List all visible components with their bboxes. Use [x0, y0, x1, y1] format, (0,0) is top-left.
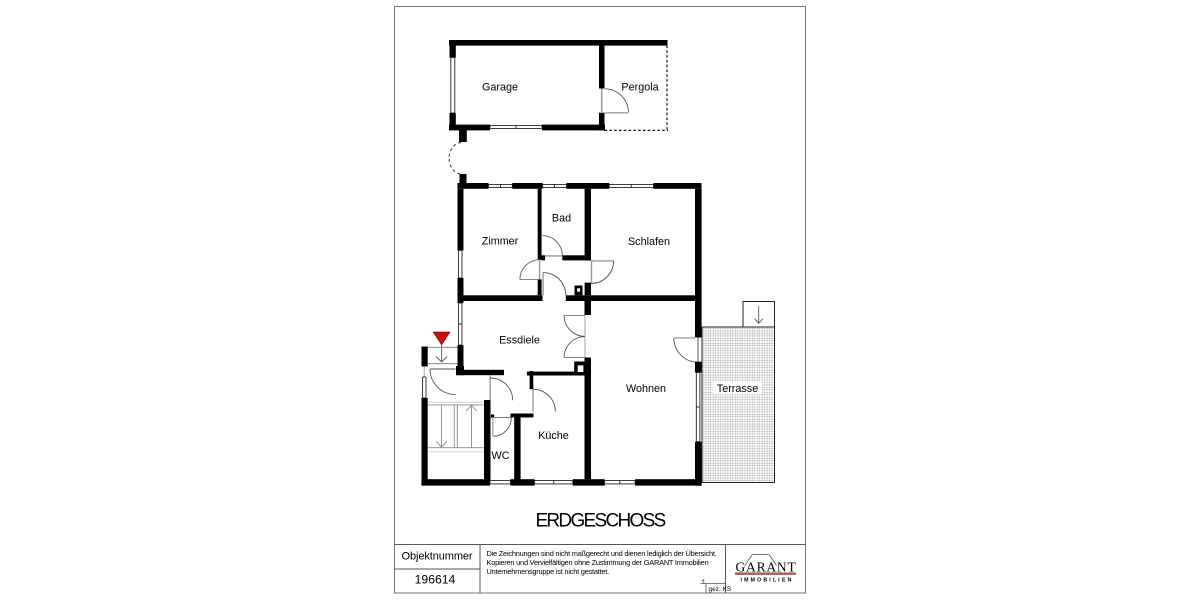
svg-text:196614: 196614 [415, 573, 456, 587]
svg-text:GARANT: GARANT [735, 560, 796, 575]
svg-text:Essdiele: Essdiele [499, 334, 540, 346]
svg-text:ERDGESCHOSS: ERDGESCHOSS [535, 511, 665, 532]
svg-text:Zimmer: Zimmer [482, 236, 519, 248]
svg-text:gez. KS: gez. KS [709, 586, 732, 593]
svg-text:IMMOBILIEN: IMMOBILIEN [740, 577, 793, 583]
svg-text:Objektnummer: Objektnummer [402, 551, 473, 563]
svg-text:Terrasse: Terrasse [717, 383, 758, 395]
svg-text:Die Zeichnungen sind nicht maß: Die Zeichnungen sind nicht maßgerecht un… [487, 549, 717, 558]
svg-text:Bad: Bad [552, 213, 571, 225]
svg-text:Pergola: Pergola [621, 81, 658, 93]
svg-text:Schlafen: Schlafen [628, 236, 670, 248]
svg-text:Küche: Küche [538, 430, 569, 442]
svg-text:Garage: Garage [482, 81, 518, 93]
svg-text:Unternehmensgruppe ist nicht g: Unternehmensgruppe ist nicht gestattet. [487, 567, 610, 576]
svg-text:WC: WC [492, 450, 510, 462]
svg-text:Kopieren und Vervielfältigen o: Kopieren und Vervielfältigen ohne Zustim… [487, 558, 709, 567]
svg-text:Wohnen: Wohnen [626, 383, 666, 395]
